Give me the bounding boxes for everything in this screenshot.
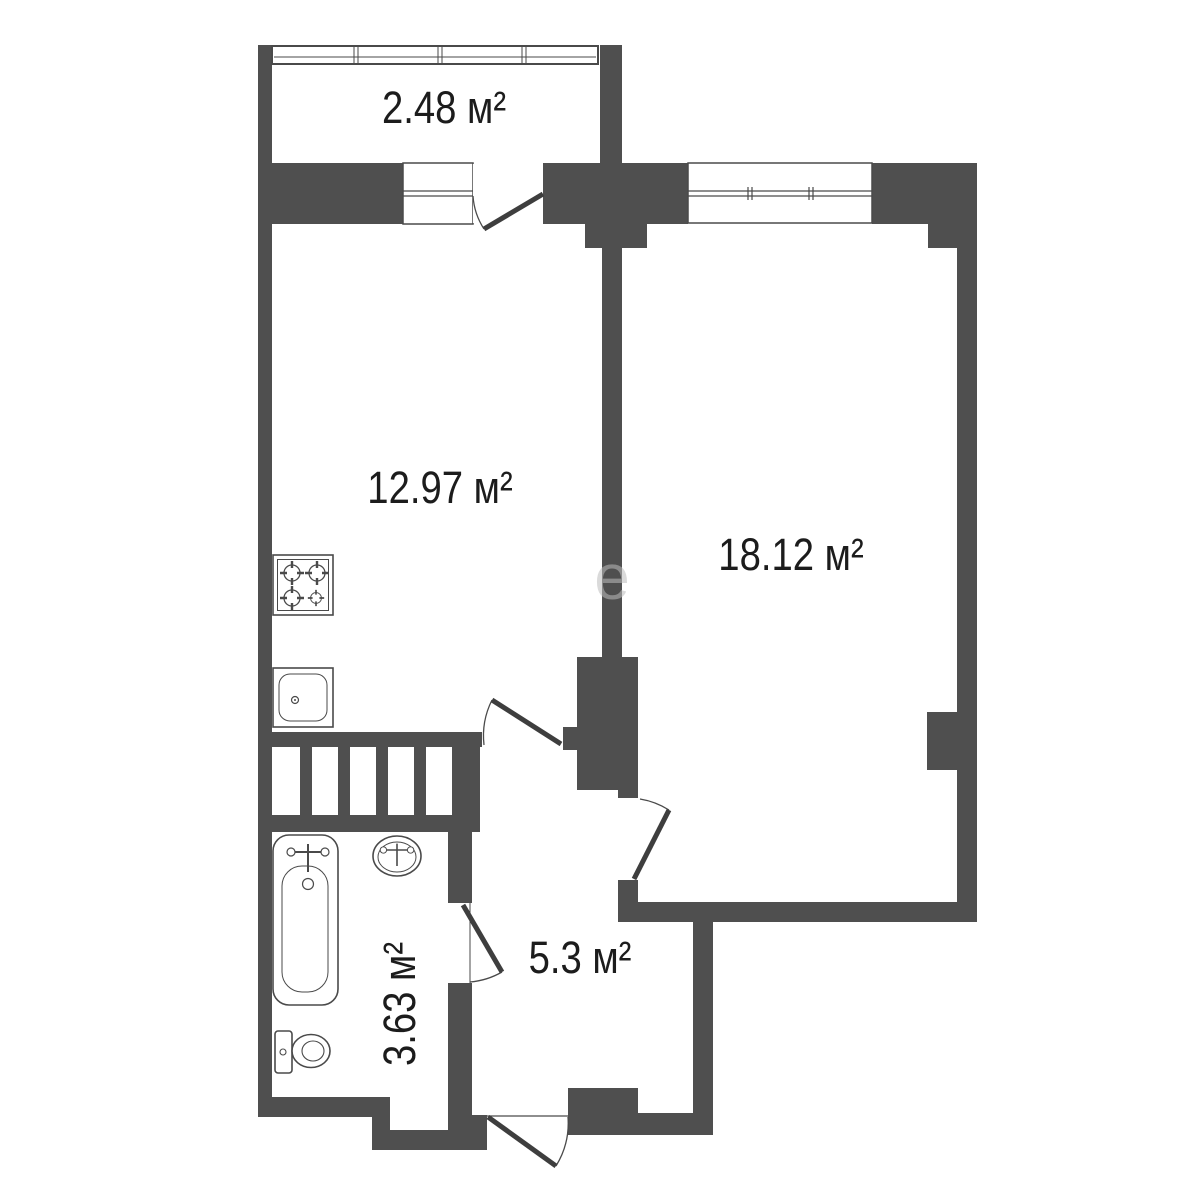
wall-hall-living-stub-top (618, 790, 638, 798)
wall-entry-block (568, 1088, 638, 1135)
room-label-kitchen: 12.97 м² (367, 462, 512, 514)
floor-plan: 2.48 м² 12.97 м² 18.12 м² 3.63 м² 5.3 м²… (0, 0, 1200, 1200)
kitchen-door-swing (483, 700, 561, 745)
wall-living-top-left (622, 163, 688, 224)
wall-living-bottom (618, 902, 957, 922)
wall-junction-mid (577, 657, 638, 790)
wall-bathroom-top (258, 815, 480, 832)
wall-corner-block (928, 223, 957, 248)
room-label-living: 18.12 м² (718, 529, 863, 581)
wall-bath-divider-upper (448, 832, 472, 903)
living-room-window (688, 163, 872, 223)
room-label-hallway: 5.3 м² (529, 932, 632, 984)
wall-bottom-right-band (638, 1113, 713, 1135)
washbasin (373, 836, 421, 876)
wall-kitchen-bottom (272, 732, 482, 747)
wall-bathroom-bottom (258, 1097, 390, 1117)
wall-bottom-left-band (372, 1130, 487, 1150)
wall-kitchen-top-left (258, 163, 403, 224)
kitchen-sink (273, 668, 333, 727)
wall-balcony-right (600, 45, 622, 163)
wall-junction-top (585, 224, 647, 248)
living-room-door-swing (634, 799, 669, 879)
wall-hall-living-stub-bottom (618, 880, 638, 902)
kitchen-window (403, 163, 473, 224)
room-label-balcony: 2.48 м² (382, 82, 506, 134)
wall-kitchen-top-right (543, 163, 622, 224)
wall-living-top-right (872, 163, 977, 224)
wall-pilaster (927, 712, 957, 770)
stove (273, 555, 333, 615)
wall-right-exterior (957, 223, 977, 922)
room-label-bathroom: 3.63 м² (374, 942, 426, 1066)
balcony-glazing-window (272, 46, 598, 64)
toilet (275, 1031, 330, 1073)
bathtub (273, 835, 338, 1005)
wall-bath-divider-lower (448, 983, 472, 1115)
wall-vent-hatch (274, 747, 455, 815)
watermark: е (594, 540, 630, 614)
balcony-door-swing (473, 164, 543, 229)
wall-hall-right (693, 922, 713, 1113)
entrance-door-swing (487, 1116, 568, 1166)
wall-kitchen-door-stub (563, 727, 577, 750)
bathroom-door-swing (463, 903, 502, 983)
